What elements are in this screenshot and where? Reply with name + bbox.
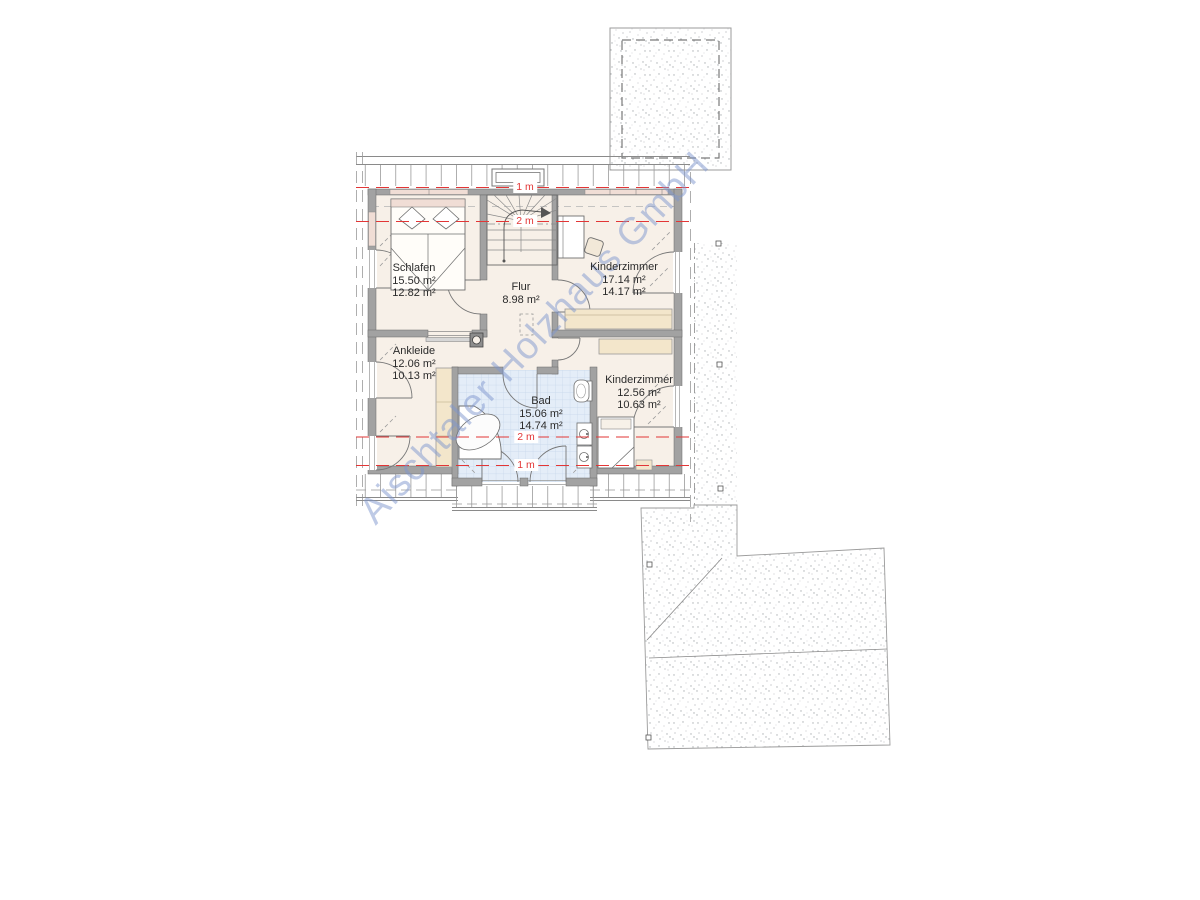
roof-area-bottom-right [641, 505, 890, 749]
room-name: Schlafen [392, 262, 435, 275]
floor-plan-drawing [0, 0, 1200, 900]
room-area-net: 10.63 m² [605, 399, 673, 412]
roof-area-right [694, 241, 737, 505]
room-name: Bad [519, 395, 562, 408]
toilet [574, 380, 592, 402]
height-label-1m-lower: 1 m [514, 459, 538, 471]
room-name: Kinderzimmer [605, 374, 673, 387]
room-area-net: 12.82 m² [392, 287, 435, 300]
desk [558, 216, 584, 258]
room-label-ankleide: Ankleide 12.06 m² 10.13 m² [392, 345, 435, 383]
room-area-gross: 8.98 m² [502, 294, 539, 307]
room-label-kinderzimmer-2: Kinderzimmer 12.56 m² 10.63 m² [605, 374, 673, 412]
room-area-net: 14.17 m² [590, 286, 658, 299]
room-area-gross: 12.06 m² [392, 358, 435, 371]
chimney [470, 333, 483, 347]
height-label-1m-upper: 1 m [513, 181, 537, 193]
floor-plan-page: Aischtaler Holzhaus GmbH Schlafen 15.50 … [0, 0, 1200, 900]
room-name: Flur [502, 281, 539, 294]
sideboard-kinderzimmer-2 [599, 339, 672, 354]
room-area-gross: 15.50 m² [392, 275, 435, 288]
room-name: Kinderzimmer [590, 261, 658, 274]
height-label-2m-upper: 2 m [513, 215, 537, 227]
room-area-gross: 12.56 m² [605, 387, 673, 400]
roof-terrace-top-right [610, 28, 731, 170]
room-area-gross: 15.06 m² [519, 408, 562, 421]
height-label-2m-lower: 2 m [514, 431, 538, 443]
room-name: Ankleide [392, 345, 435, 358]
room-label-kinderzimmer-1: Kinderzimmer 17.14 m² 14.17 m² [590, 261, 658, 299]
room-label-flur: Flur 8.98 m² [502, 281, 539, 306]
room-area-gross: 17.14 m² [590, 274, 658, 287]
room-label-bad: Bad 15.06 m² 14.74 m² [519, 395, 562, 433]
room-label-schlafen: Schlafen 15.50 m² 12.82 m² [392, 262, 435, 300]
room-area-net: 10.13 m² [392, 370, 435, 383]
bed-single [598, 417, 634, 468]
